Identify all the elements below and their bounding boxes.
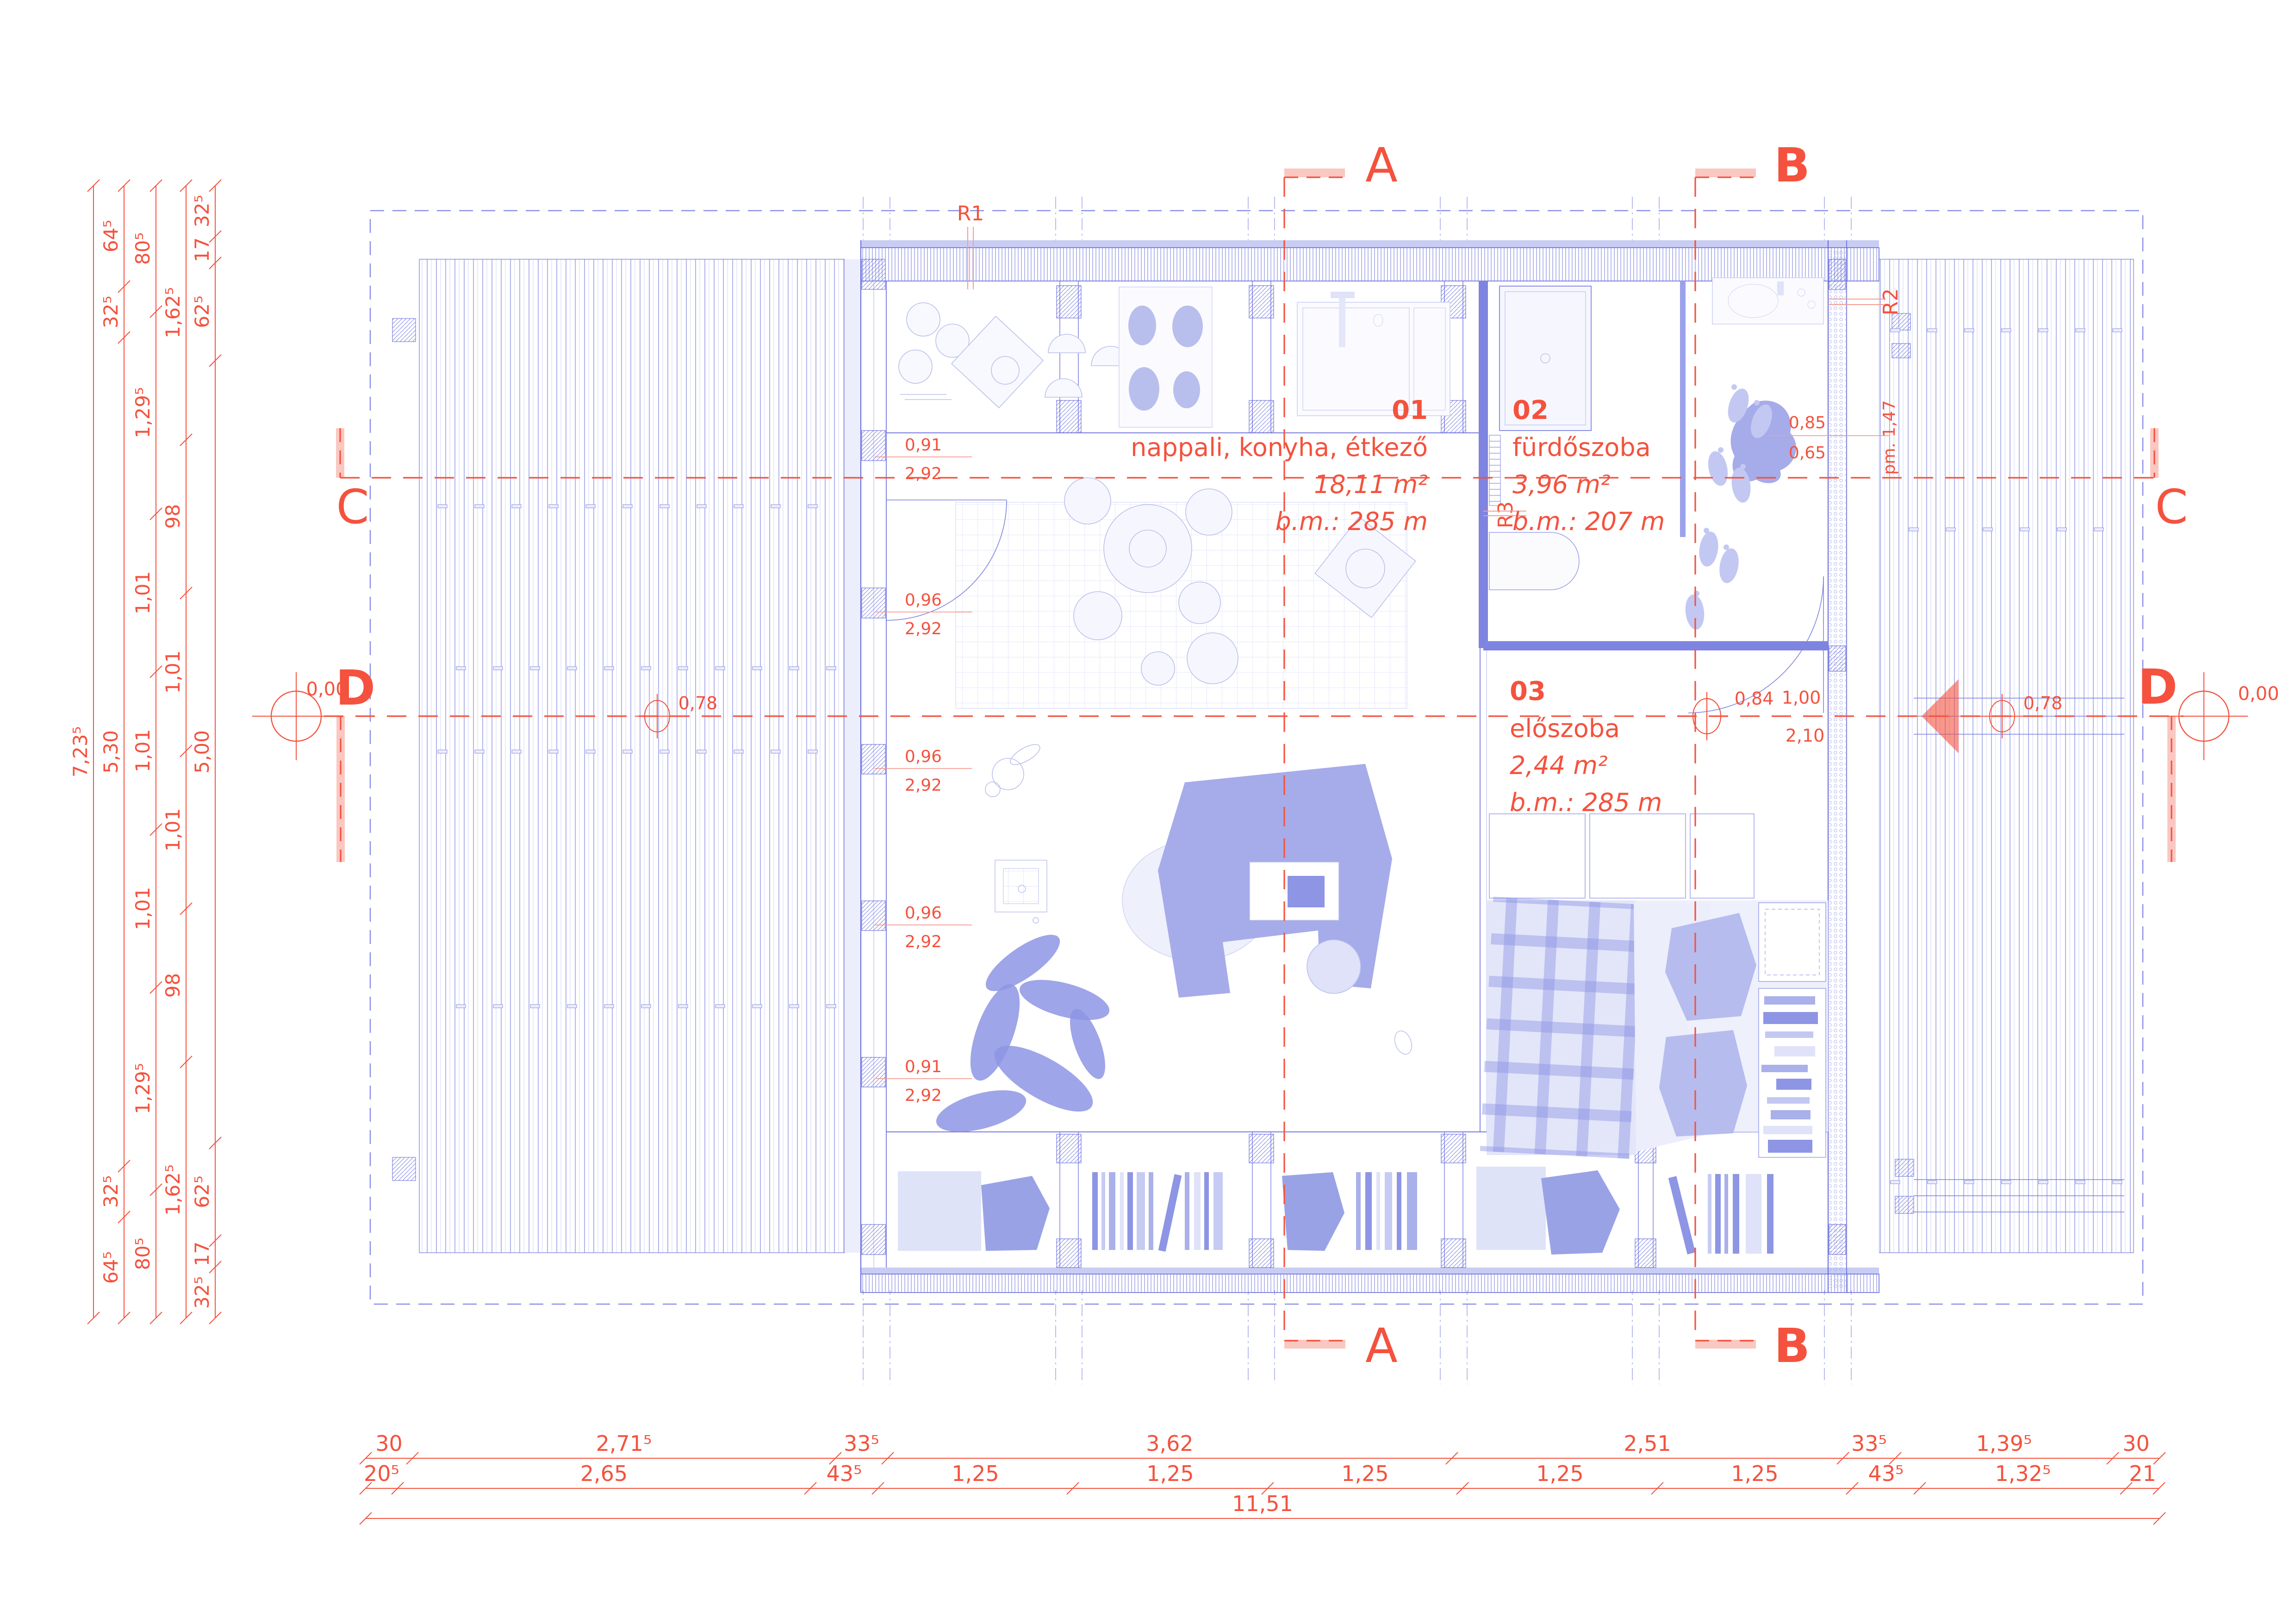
door-height: 2,10 — [1786, 725, 1825, 746]
dim-label: 1,62⁵ — [162, 1164, 184, 1215]
level-zero-right: 0,00 — [2238, 683, 2279, 705]
wardrobe-dashed — [1759, 903, 1826, 981]
ref-r2: R2 — [1879, 288, 1903, 316]
dim-label: 1,25 — [1731, 1461, 1778, 1486]
window-height: 2,92 — [905, 464, 942, 483]
window-width: 0,96 — [905, 904, 942, 923]
dim-label: 2,65 — [580, 1461, 628, 1486]
dim-label: 17 — [191, 1242, 213, 1266]
room-height: b.m.: 285 m — [1276, 507, 1428, 536]
window-height: 2,92 — [905, 776, 942, 795]
dim-label: 1,25 — [1536, 1461, 1583, 1486]
dim-label: 98 — [162, 504, 184, 529]
dim-label: 2,51 — [1624, 1431, 1671, 1456]
dim-label: 30 — [2122, 1431, 2150, 1456]
pillow — [1659, 1030, 1747, 1137]
room-name: nappali, konyha, étkező — [1131, 433, 1428, 462]
section-letter-c-left: C — [336, 480, 369, 535]
bath-dim-width: 0,85 — [1789, 413, 1826, 432]
section-letter-d-right: D — [2138, 659, 2178, 715]
dim-label: 43⁵ — [827, 1461, 862, 1486]
room-number: 02 — [1512, 395, 1549, 425]
side-table — [995, 860, 1047, 912]
dim-label: 64⁵ — [100, 220, 122, 252]
dim-label: 1,25 — [952, 1461, 999, 1486]
bedroom-furniture — [1480, 897, 1828, 1159]
dim-label: 62⁵ — [191, 1175, 213, 1208]
dim-label: 2,71⁵ — [596, 1431, 652, 1456]
ref-r1: R1 — [957, 202, 984, 225]
toilet — [1489, 532, 1579, 590]
pouf — [1307, 940, 1361, 993]
dim-label: 7,23⁵ — [69, 726, 92, 777]
bathroom-sink — [1712, 278, 1823, 324]
deck-level-left: 0,78 — [678, 693, 718, 713]
hall-level: 0,84 — [1735, 688, 1774, 709]
dim-chain-left: 7,23⁵64⁵32⁵5,3032⁵64⁵80⁵1,29⁵1,011,011,0… — [69, 180, 221, 1324]
bathroom-bottom-wall — [1483, 641, 1828, 650]
dim-label: 80⁵ — [131, 1237, 154, 1270]
room-number: 01 — [1392, 395, 1428, 425]
dim-label: 3,62 — [1146, 1431, 1193, 1456]
coffee-table — [1250, 862, 1339, 920]
dim-chain-bottom: 302,71⁵33⁵3,622,5133⁵1,39⁵3020⁵2,6543⁵1,… — [360, 1431, 2165, 1524]
dim-label: 80⁵ — [131, 232, 154, 265]
dim-label: 1,01 — [162, 650, 184, 694]
room-height: b.m.: 207 m — [1512, 507, 1665, 536]
bathroom-inner-wall — [1680, 281, 1686, 537]
note-pm: pm. 1,47 — [1880, 400, 1899, 475]
dim-label: 17 — [191, 237, 213, 262]
level-zero-left: 0,00 — [306, 679, 347, 700]
left-deck — [392, 259, 861, 1253]
section-letter-a-top: A — [1365, 138, 1398, 193]
window-height: 2,92 — [905, 1086, 942, 1105]
window-width: 0,96 — [905, 591, 942, 610]
dim-label: 1,01 — [162, 808, 184, 852]
section-letter-a-bottom: A — [1365, 1318, 1398, 1374]
room-name: előszoba — [1510, 714, 1620, 743]
dim-label: 64⁵ — [100, 1251, 122, 1284]
dim-label: 1,32⁵ — [1995, 1461, 2051, 1486]
door-width: 1,00 — [1782, 687, 1821, 708]
bath-dim-depth: 0,65 — [1789, 443, 1826, 462]
room-name: fürdőszoba — [1512, 433, 1651, 462]
dim-label: 1,01 — [131, 887, 154, 931]
room-height: b.m.: 285 m — [1510, 788, 1662, 817]
section-letter-b-top: B — [1774, 138, 1810, 193]
dim-label: 62⁵ — [191, 295, 213, 328]
window-width: 0,96 — [905, 747, 942, 766]
dim-label: 1,25 — [1146, 1461, 1194, 1486]
room-area: 2,44 m² — [1510, 751, 1608, 780]
deck-level-right: 0,78 — [2023, 693, 2063, 713]
dim-label: 20⁵ — [364, 1461, 399, 1486]
dim-label: 1,62⁵ — [162, 287, 184, 338]
dim-label: 1,39⁵ — [1976, 1431, 2032, 1456]
dim-label: 43⁵ — [1868, 1461, 1904, 1486]
dim-label: 32⁵ — [191, 195, 213, 227]
dim-label: 21 — [2129, 1461, 2156, 1486]
window-width: 0,91 — [905, 1057, 942, 1076]
bathroom-partition-wall — [1479, 281, 1488, 648]
window-width: 0,91 — [905, 436, 942, 455]
dim-label: 1,25 — [1341, 1461, 1388, 1486]
window-height: 2,92 — [905, 932, 942, 951]
dim-label: 1,29⁵ — [131, 1063, 154, 1114]
room-number: 03 — [1510, 676, 1546, 706]
room-area: 3,96 m² — [1512, 470, 1611, 499]
dim-label: 1,01 — [131, 571, 154, 615]
floor-plan-drawing: A A B B C C D D 0,00 0,00 0,78 0,78 0,84… — [0, 0, 2296, 1624]
dim-label: 11,51 — [1232, 1491, 1293, 1516]
cooktop — [1119, 287, 1212, 427]
window-height: 2,92 — [905, 619, 942, 638]
dim-label: 1,01 — [131, 729, 154, 773]
room-area: 18,11 m² — [1314, 470, 1428, 499]
section-letter-c-right: C — [2155, 480, 2188, 535]
dim-label: 98 — [162, 973, 184, 998]
section-letter-b-bottom: B — [1774, 1318, 1810, 1374]
dim-label: 32⁵ — [191, 1276, 213, 1309]
dim-label: 32⁵ — [100, 296, 122, 328]
dim-label: 33⁵ — [1851, 1431, 1887, 1456]
dim-label: 5,00 — [191, 730, 213, 774]
dim-label: 33⁵ — [844, 1431, 879, 1456]
bookshelf — [1759, 988, 1826, 1157]
dim-label: 5,30 — [100, 730, 122, 774]
dim-label: 1,29⁵ — [131, 387, 154, 438]
radiator — [1489, 435, 1500, 506]
dim-label: 30 — [375, 1431, 403, 1456]
hall-closets — [1489, 814, 1754, 898]
dim-label: 32⁵ — [100, 1175, 122, 1208]
